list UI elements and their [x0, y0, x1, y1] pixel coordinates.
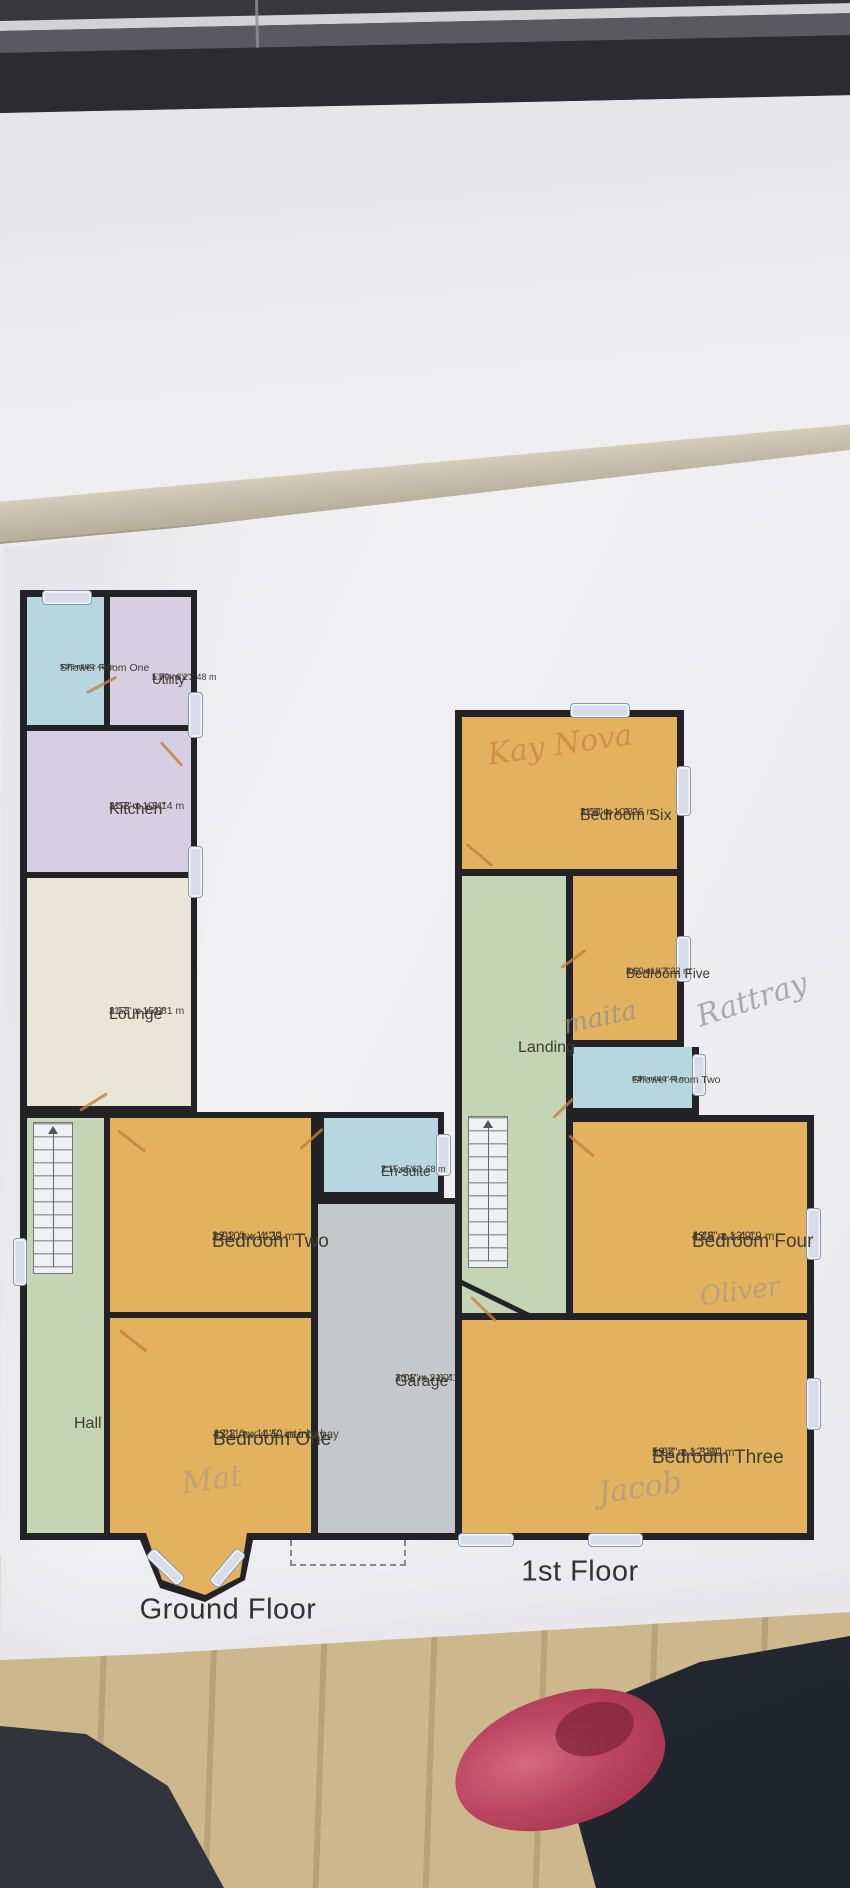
room-dimensions-imperial: 13'8" x 13'9" — [692, 1230, 755, 1244]
window-symbol — [588, 1533, 643, 1547]
room-dimensions-imperial: 12'10" x 14'1" — [212, 1230, 281, 1244]
first-floor-title: 1st Floor — [521, 1556, 638, 1589]
ground-floor-title: Ground Floor — [140, 1594, 317, 1627]
window-symbol — [13, 1238, 27, 1286]
stairs-symbol — [468, 1116, 508, 1268]
room-dimensions-imperial: 10'1" x 21'0" — [395, 1372, 453, 1385]
room-dimensions-imperial: 6'9" x 4'10" — [632, 1074, 669, 1083]
room-dimensions-imperial: 7'1" x 5'6" — [381, 1164, 420, 1175]
room-en-suite — [324, 1118, 438, 1192]
room-dimensions-imperial: 13'11" x 14'5" into bay — [213, 1428, 325, 1442]
window-symbol — [188, 846, 203, 898]
window-symbol — [188, 692, 203, 738]
window-symbol — [570, 703, 630, 718]
room-garage — [318, 1204, 469, 1533]
stairs-symbol — [33, 1122, 73, 1274]
room-dimensions-imperial: 11'7" x 10'4" — [109, 800, 166, 813]
room-dimensions-imperial: 11'8" x 10'8" — [580, 806, 637, 819]
window-symbol — [676, 766, 691, 816]
garage-door-symbol — [290, 1540, 406, 1566]
window-frame-top — [0, 0, 850, 113]
window-symbol — [42, 590, 92, 605]
room-dimensions-imperial: 5'7" x 8'2" — [152, 672, 191, 683]
photo-of-floorplan: Shower Room One 1.73 m x 2.48 m 5'8" x 8… — [0, 0, 850, 1888]
room-dimensions-imperial: 8'6" x 10'7" — [626, 966, 670, 977]
room-name: Landing — [518, 1038, 575, 1058]
room-dimensions-imperial: 19'7" x 12'10" — [652, 1446, 721, 1460]
frame-joint-line — [255, 0, 259, 48]
window-symbol — [806, 1378, 821, 1430]
slipper-opening — [549, 1693, 640, 1765]
room-dimensions-imperial: 5'8" x 8'2" — [60, 662, 93, 671]
room-dimensions-imperial: 11'7" x 15'9" — [109, 1005, 166, 1018]
room-name: Hall — [74, 1414, 102, 1434]
room-lounge — [27, 878, 191, 1106]
room-bedroom-one — [110, 1318, 311, 1533]
room-utility — [110, 597, 191, 725]
window-symbol — [458, 1533, 514, 1547]
room-shower-room-one — [27, 597, 104, 725]
